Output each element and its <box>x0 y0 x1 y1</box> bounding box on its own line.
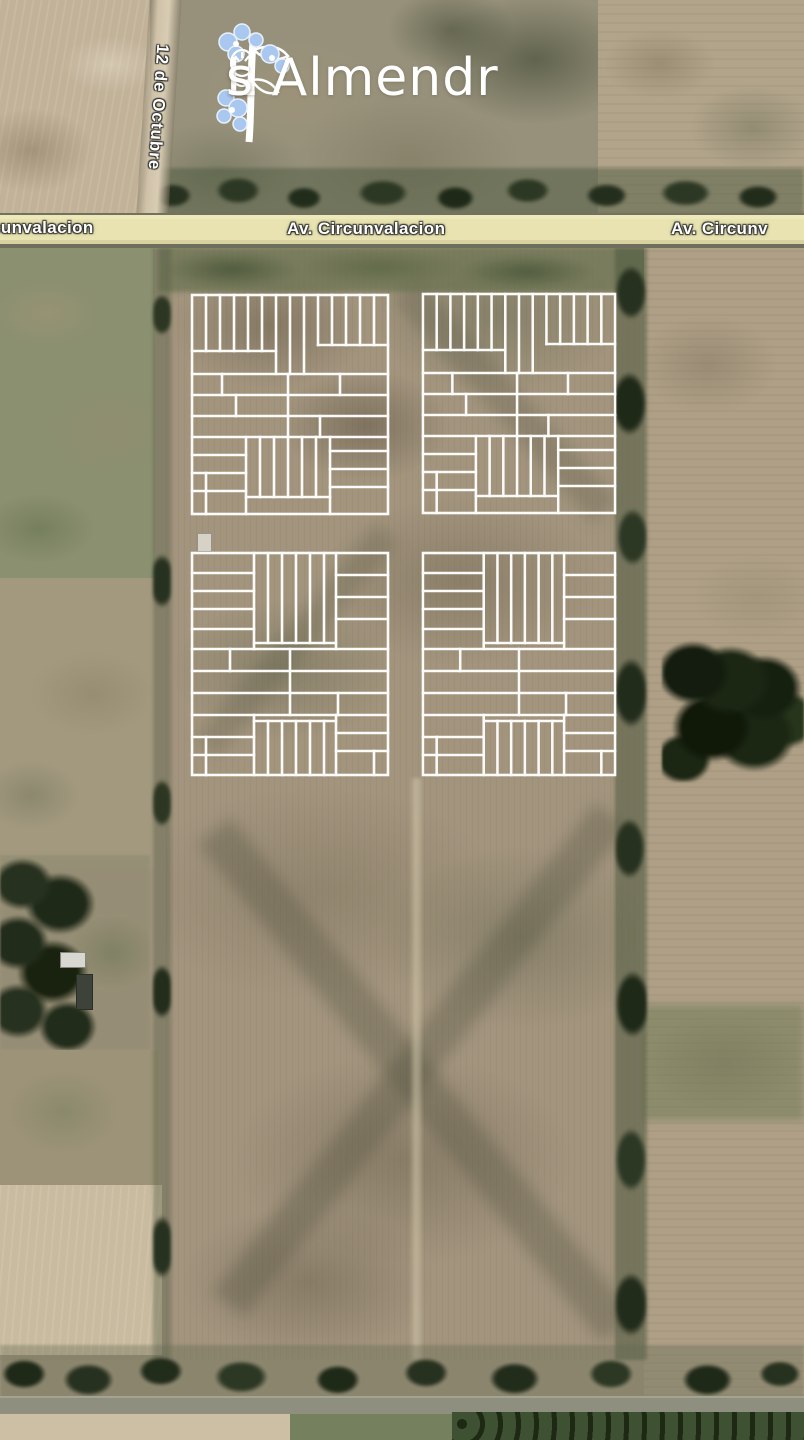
field-top-left <box>0 0 158 215</box>
tree-cluster-right <box>662 626 804 782</box>
treeline-along-avenue <box>146 168 804 218</box>
road-label-av-circunvalacion-right: Av. Circunv <box>671 219 768 239</box>
treeline-bottom <box>0 1345 804 1403</box>
logo-text-part: s <box>226 48 254 108</box>
lot-block-4 <box>421 551 617 777</box>
field-left-pale <box>0 1185 162 1355</box>
field-left-middle <box>0 578 155 868</box>
small-shed <box>197 533 212 552</box>
orchard-bottom-right <box>452 1412 804 1440</box>
farm-building <box>60 952 86 968</box>
lot-block-3 <box>190 551 390 777</box>
green-strip-below-road <box>158 247 650 292</box>
logo-text-part: s Almendr <box>226 48 499 108</box>
field-right <box>644 248 804 1412</box>
field-bottom-left <box>0 1414 290 1440</box>
treeline-left-boundary <box>153 248 171 1358</box>
green-band-right <box>644 1005 804 1120</box>
treeline-right-boundary <box>615 248 647 1360</box>
field-bottom-green <box>290 1414 452 1440</box>
farm-shed <box>76 974 93 1010</box>
lot-block-2 <box>421 292 617 515</box>
road-label-av-circunvalacion-center: Av. Circunvalacion <box>287 219 445 239</box>
field-center-path <box>412 778 421 1360</box>
los-almendros-logo: Ls Almendrs <box>200 18 610 148</box>
satellite-map: cunvalacion Av. Circunvalacion Av. Circu… <box>0 0 804 1440</box>
pasture-left <box>0 248 155 578</box>
road-label-av-circunvalacion-left: cunvalacion <box>0 218 94 238</box>
lot-block-1 <box>190 293 390 516</box>
